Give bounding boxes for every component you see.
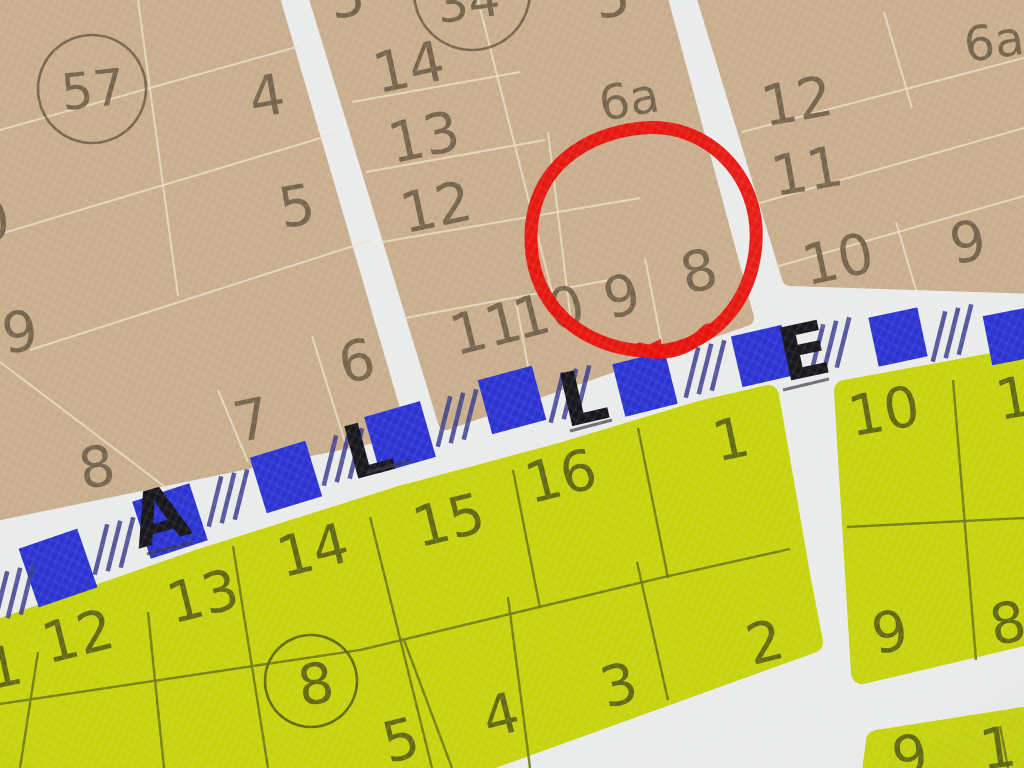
- parcel-label: 10: [843, 374, 924, 450]
- block-number: 57: [58, 58, 127, 122]
- parcel-label: 11: [766, 134, 847, 210]
- parcel-label-partial: 6a: [960, 10, 1024, 74]
- parcel-label: 12: [756, 64, 837, 140]
- map-photo: 57 4 5 9 8 7 6 0 34 5 5 14 13 12 6a 11 1…: [0, 0, 1024, 768]
- zoning-map: 57 4 5 9 8 7 6 0 34 5 5 14 13 12 6a 11 1…: [0, 0, 1024, 768]
- street-square: [868, 307, 927, 366]
